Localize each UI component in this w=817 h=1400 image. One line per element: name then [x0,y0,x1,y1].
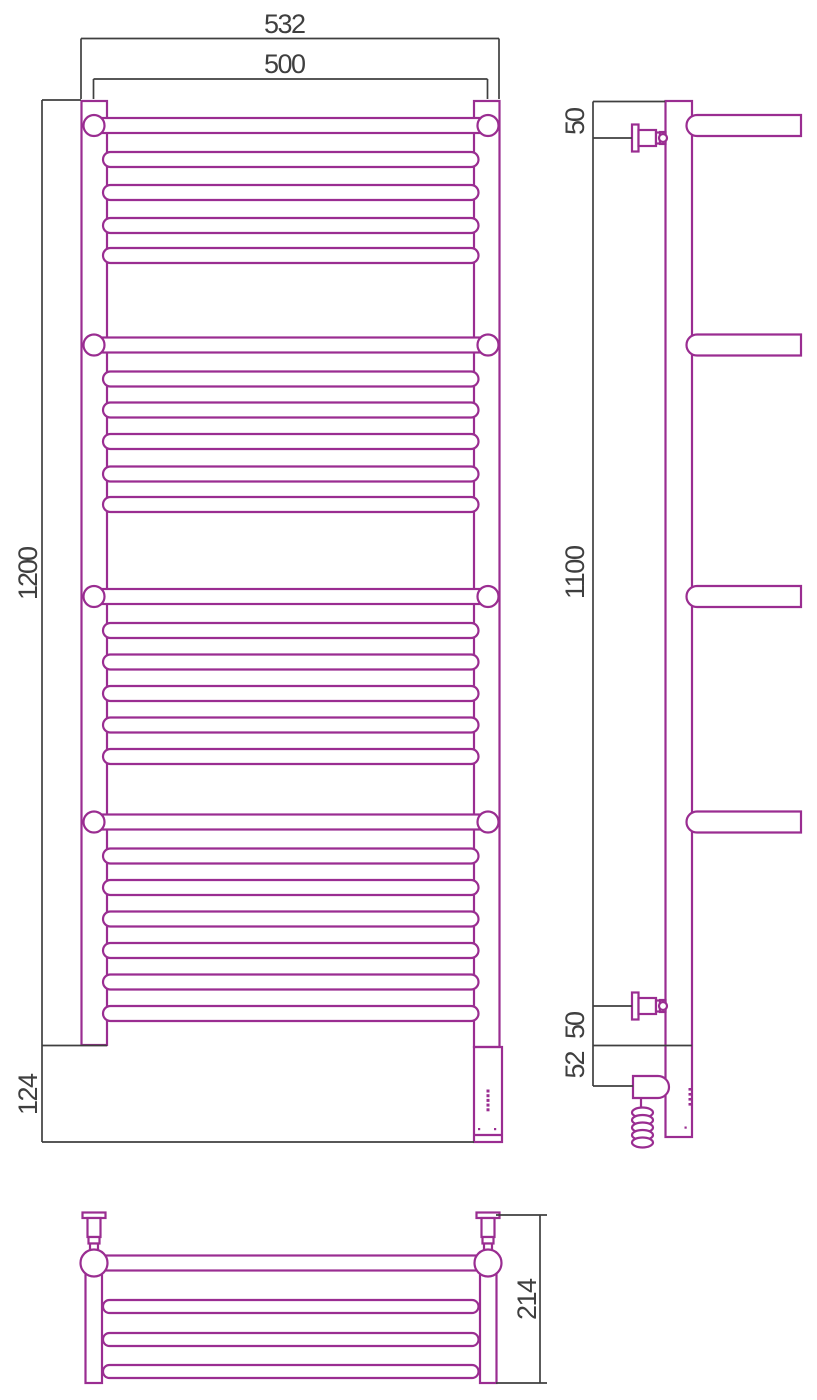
front-right-rail [474,101,500,1047]
wall-boss [84,335,105,356]
side-rail [666,101,693,1137]
towel-bar-bottom [103,1300,479,1313]
wall-boss [84,586,105,607]
dim-bottom-bracket-label: 50 [560,1011,590,1039]
towel-bar-bottom [103,1365,479,1378]
dim-depth: 214 [496,1215,547,1383]
indicator-dots [478,1090,496,1131]
dim-bracket-span-label: 1100 [560,545,590,599]
towel-bar [103,248,479,263]
shelf-bar-side [687,335,802,356]
dim-overall-width-label: 532 [264,9,306,39]
towel-bar [103,655,479,670]
front-towel-bars [103,152,479,1021]
towel-bar [103,467,479,482]
wall-boss [478,586,499,607]
element-plug [633,1076,669,1098]
dim-side-stack: 50 1100 50 52 [560,102,692,1087]
side-view [632,101,801,1148]
bracket-screw-icon [659,1002,667,1010]
towel-bar [103,686,479,701]
towel-bar [103,434,479,449]
indicator-dots-side [685,1088,692,1129]
towel-bar [103,497,479,512]
shelf-bar [94,589,488,604]
towel-bar [103,975,479,990]
wall-boss [478,812,499,833]
bottom-left-rail-section [86,1263,103,1383]
towel-bar [103,152,479,167]
bottom-depth-bars [103,1300,479,1378]
dim-depth-label: 214 [512,1278,542,1320]
towel-bar [103,623,479,638]
top-wall-bracket [632,125,667,152]
rail-tube-section [475,1250,502,1277]
dim-axis-width-label: 500 [264,49,306,79]
towel-bar [103,218,479,233]
dim-element-axis-label: 52 [560,1051,590,1079]
coiled-cable [632,1108,653,1148]
towel-bar [103,372,479,387]
side-shelf-bars [687,115,802,833]
bottom-wall-bracket [632,993,667,1020]
rail-tube-section [81,1250,108,1277]
shelf-bar [94,338,488,353]
shelf-bar-bottom [94,1256,488,1271]
technical-drawing: 532 500 1200 124 50 1100 50 [0,0,817,1400]
towel-bar [103,880,479,895]
towel-bar [103,403,479,418]
dim-element-zone-label: 124 [13,1073,43,1115]
towel-bar [103,912,479,927]
towel-bar [103,1006,479,1021]
shelf-bar [94,815,488,830]
front-heating-element [474,1047,502,1142]
wall-boss [478,335,499,356]
towel-bar [103,718,479,733]
wall-boss [478,115,499,136]
towel-bar [103,849,479,864]
wall-boss [84,115,105,136]
dim-top-bracket-label: 50 [560,107,590,135]
wall-boss [84,812,105,833]
front-view [82,101,503,1142]
towel-bar-bottom [103,1333,479,1346]
bracket-screw-icon [659,134,667,142]
shelf-bar-side [687,115,802,136]
towel-bar [103,185,479,200]
dim-height-label: 1200 [13,546,43,600]
towel-bar [103,749,479,764]
shelf-bar-side [687,812,802,833]
bottom-right-bracket [477,1213,500,1251]
bottom-left-bracket [83,1213,106,1251]
towel-bar [103,943,479,958]
shelf-bar-side [687,586,802,607]
dim-axis-width: 500 [94,49,488,99]
shelf-bar [94,118,488,133]
front-left-rail [82,101,108,1045]
towel-rail-drawing: 532 500 1200 124 50 1100 50 [0,0,817,1400]
bottom-view [81,1213,502,1384]
bottom-right-rail-section [480,1263,497,1383]
